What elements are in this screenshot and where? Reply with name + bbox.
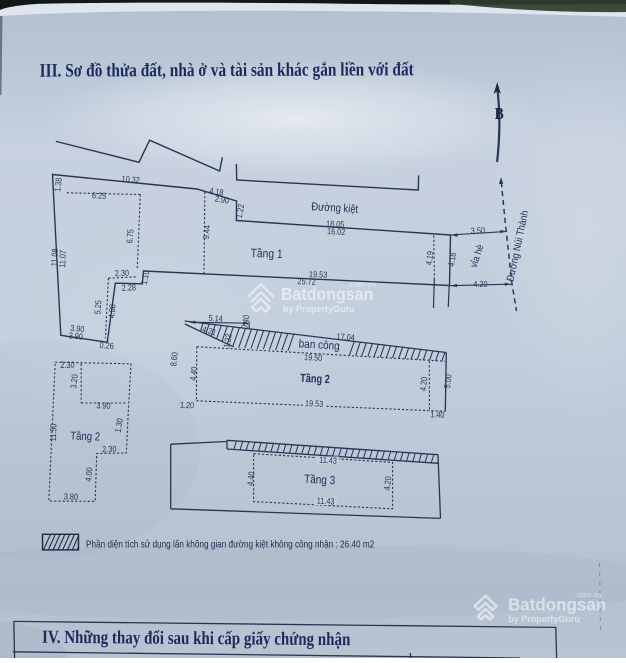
svg-text:4.18: 4.18 — [446, 251, 458, 267]
svg-text:by PropertyGuru: by PropertyGuru — [283, 304, 355, 314]
svg-text:19.50: 19.50 — [304, 352, 323, 363]
svg-text:8.60: 8.60 — [169, 351, 180, 367]
svg-text:4.20: 4.20 — [418, 376, 429, 392]
svg-text:.com.vn: .com.vn — [575, 590, 602, 599]
svg-text:3.50: 3.50 — [471, 226, 486, 236]
svg-text:1.40: 1.40 — [430, 410, 445, 420]
svg-text:2.28: 2.28 — [122, 283, 137, 293]
svg-text:10.32: 10.32 — [121, 174, 140, 185]
svg-text:1.20: 1.20 — [180, 400, 195, 411]
svg-text:Tầng 2: Tầng 2 — [300, 372, 330, 387]
svg-text:4.19: 4.19 — [424, 250, 436, 266]
svg-text:3.80: 3.80 — [64, 492, 79, 502]
svg-text:5.14: 5.14 — [208, 313, 223, 324]
svg-text:IV. Những thay đổi sau khi cấp: IV. Những thay đổi sau khi cấp giấy chứn… — [42, 626, 351, 649]
svg-text:2.30: 2.30 — [60, 360, 75, 370]
svg-text:1.38: 1.38 — [53, 177, 64, 193]
svg-text:16.02: 16.02 — [327, 226, 346, 237]
svg-text:0.26: 0.26 — [99, 340, 114, 351]
svg-text:by PropertyGuru: by PropertyGuru — [508, 614, 580, 624]
svg-text:11.43: 11.43 — [317, 496, 336, 507]
svg-text:19.53: 19.53 — [305, 399, 324, 410]
svg-text:4.20: 4.20 — [473, 279, 488, 289]
svg-text:2.30: 2.30 — [102, 444, 117, 454]
svg-text:ban công: ban công — [298, 338, 340, 353]
svg-text:9.44: 9.44 — [201, 224, 212, 239]
svg-text:3.90: 3.90 — [96, 401, 111, 411]
svg-text:4.00: 4.00 — [83, 466, 94, 482]
svg-text:III. Sơ đồ thửa đất, nhà ở và: III. Sơ đồ thửa đất, nhà ở và tài sản kh… — [40, 59, 414, 81]
svg-text:3.90: 3.90 — [68, 331, 84, 342]
svg-text:6.25: 6.25 — [92, 191, 107, 201]
svg-text:4.20: 4.20 — [382, 475, 393, 491]
svg-text:Phần diện tích sử dụng lấn khô: Phần diện tích sử dụng lấn không gian đư… — [86, 539, 374, 550]
svg-text:2.90: 2.90 — [214, 194, 230, 206]
svg-text:Tầng 1: Tầng 1 — [250, 247, 282, 261]
svg-text:11.07: 11.07 — [57, 249, 68, 268]
svg-text:5.00: 5.00 — [442, 373, 453, 389]
svg-text:Tầng 2: Tầng 2 — [70, 430, 100, 444]
svg-text:11.50: 11.50 — [48, 423, 58, 441]
svg-text:3.20: 3.20 — [69, 373, 80, 389]
svg-text:.com.vn: .com.vn — [348, 280, 375, 289]
svg-text:4.88: 4.88 — [107, 303, 118, 318]
svg-text:2.30: 2.30 — [115, 268, 130, 278]
svg-text:6.75: 6.75 — [125, 228, 136, 243]
svg-text:5.25: 5.25 — [93, 299, 104, 314]
svg-text:11.43: 11.43 — [319, 455, 338, 466]
svg-text:4.40: 4.40 — [188, 366, 199, 382]
svg-text:B: B — [495, 106, 504, 123]
svg-text:Tầng 3: Tầng 3 — [304, 473, 336, 488]
svg-text:4.40: 4.40 — [245, 471, 256, 487]
